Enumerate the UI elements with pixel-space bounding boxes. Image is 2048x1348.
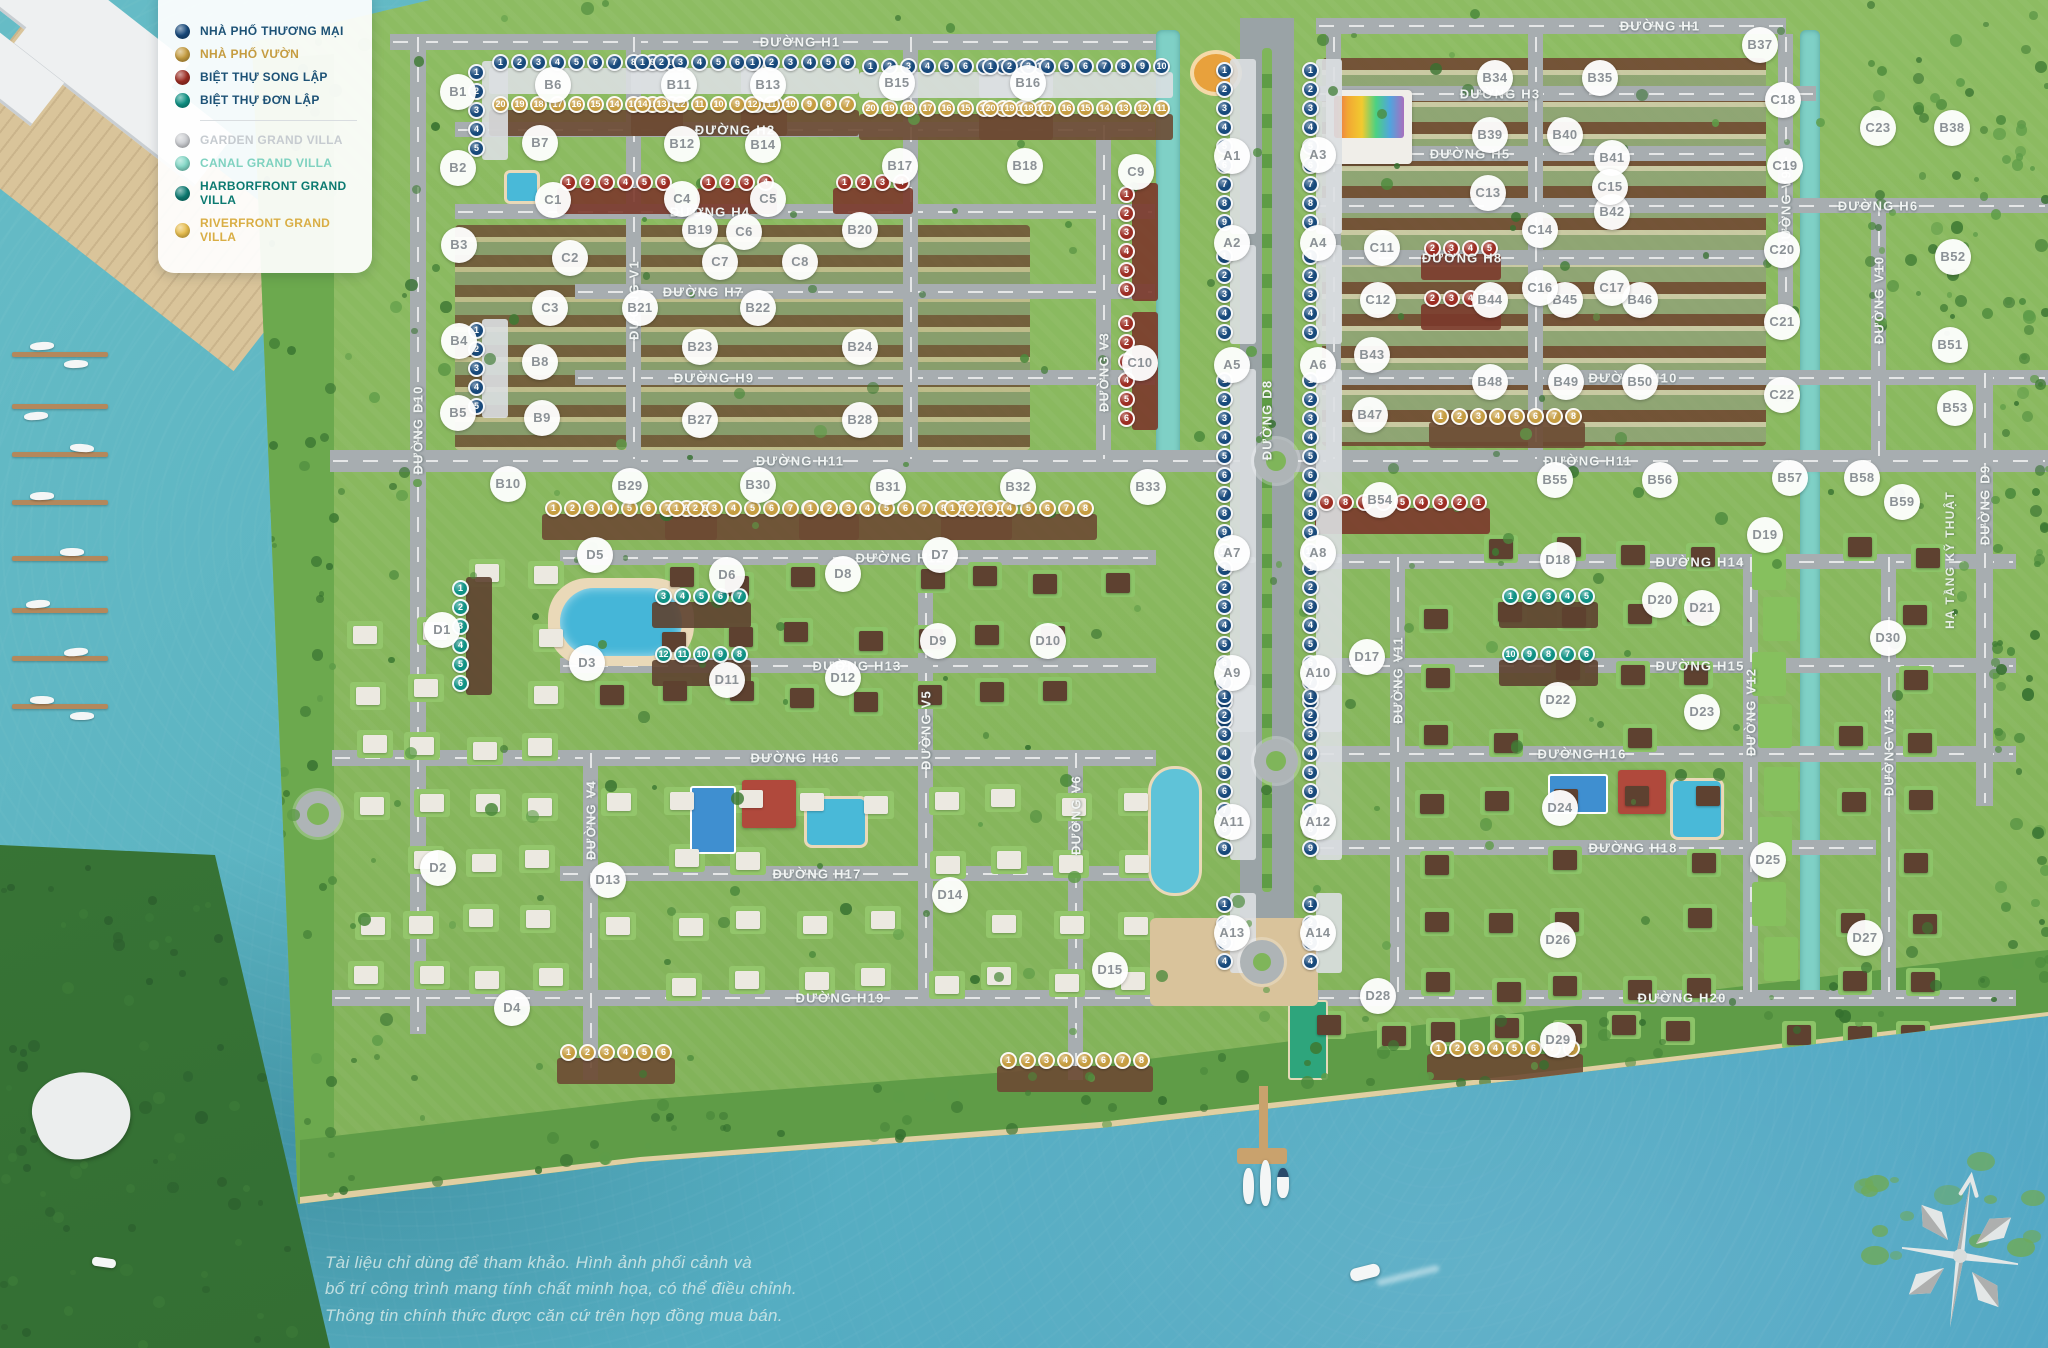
villa-roof: [1317, 1015, 1341, 1035]
tree: [329, 513, 339, 523]
road-name-label: ĐƯỜNG H16: [750, 751, 839, 766]
water-plant: [1890, 1251, 1903, 1260]
villa-building: [936, 856, 960, 874]
water-plant: [1872, 1225, 1888, 1237]
villa-roof: [1420, 794, 1444, 814]
tree: [319, 883, 327, 891]
unit-number: 3: [1118, 224, 1135, 241]
villa-building: [363, 735, 387, 753]
unit-number: 7: [782, 500, 799, 517]
tree: [70, 1270, 75, 1275]
tree: [2014, 401, 2019, 406]
tree: [651, 1113, 660, 1122]
tree: [440, 301, 451, 312]
block-label-A10: A10: [1300, 655, 1336, 691]
tree: [431, 122, 440, 131]
tree: [2017, 387, 2029, 399]
tree: [1409, 563, 1415, 569]
tree: [645, 1143, 651, 1149]
tree: [219, 977, 228, 986]
tree: [1023, 968, 1035, 980]
tree: [2022, 688, 2034, 700]
villa-building: [469, 909, 493, 927]
tree: [1236, 1070, 1249, 1083]
boat: [60, 548, 84, 556]
villa-roof: [854, 692, 878, 712]
tree: [1867, 1, 1875, 9]
tree: [2021, 45, 2030, 54]
villa-roof: [1485, 791, 1509, 811]
block-label-B3: B3: [441, 227, 477, 263]
villa-roof: [791, 567, 815, 587]
block-label-C11: C11: [1364, 230, 1400, 266]
block-label-B16: B16: [1010, 65, 1046, 101]
unit-number: 9: [1318, 494, 1335, 511]
road-name-label: ĐƯỜNG D10: [411, 385, 426, 474]
tree: [730, 886, 740, 896]
unit-number: 4: [1302, 119, 1319, 136]
tree: [2035, 379, 2046, 390]
canal: [1800, 468, 1820, 1002]
tree: [1495, 1015, 1507, 1027]
unit-number: 3: [840, 500, 857, 517]
legend-color-swatch: [175, 24, 190, 39]
villa-roof: [784, 622, 808, 642]
tree: [165, 936, 173, 944]
block-label-C21: C21: [1764, 304, 1800, 340]
unit-number: 4: [725, 500, 742, 517]
building-strip: [1499, 602, 1598, 628]
unit-number: 7: [1302, 486, 1319, 503]
road-ĐƯỜNG H10: [1316, 370, 2048, 385]
boat: [30, 696, 54, 704]
road-name-label: ĐƯỜNG V13: [1881, 708, 1896, 796]
unit-number: 4: [617, 1044, 634, 1061]
tree: [2023, 311, 2036, 324]
tree: [40, 1191, 46, 1197]
tree: [388, 657, 395, 664]
unit-number: 1: [1216, 62, 1233, 79]
building-strip: [1132, 183, 1158, 301]
tree: [2010, 818, 2023, 831]
unit-number: 4: [468, 379, 485, 396]
pier: [12, 352, 108, 357]
tree: [667, 907, 676, 916]
villa-roof: [1425, 912, 1449, 932]
block-label-D28: D28: [1360, 978, 1396, 1014]
tree: [2031, 899, 2039, 907]
pier: [12, 608, 108, 613]
villa-roof: [1628, 728, 1652, 748]
tree: [1317, 34, 1329, 46]
tree: [284, 1246, 290, 1252]
unit-number: 1: [1302, 62, 1319, 79]
tree: [411, 328, 418, 335]
block-label-C19: C19: [1767, 148, 1803, 184]
tree: [1973, 232, 1979, 238]
villa-roof: [1043, 681, 1067, 701]
tree: [485, 803, 498, 816]
unit-number: 8: [1302, 195, 1319, 212]
villa-roof: [729, 627, 753, 647]
tree: [952, 208, 958, 214]
tree: [1449, 52, 1455, 58]
unit-number: 3: [1302, 286, 1319, 303]
tree: [439, 1129, 444, 1134]
unit-number: 5: [1118, 262, 1135, 279]
road-name-label: ĐƯỜNG H18: [1588, 840, 1677, 855]
building-strip: [557, 1058, 675, 1084]
legend-item-7: HARBORFRONT GRAND VILLA: [175, 179, 357, 208]
road-ĐƯỜNG D9: [1976, 370, 1993, 806]
unit-number: 20: [492, 96, 509, 113]
villa-roof: [1553, 850, 1577, 870]
tree: [1994, 728, 2003, 737]
tree: [1377, 109, 1387, 119]
water-plant: [2023, 1230, 2041, 1243]
tree: [326, 1076, 337, 1087]
villa-roof: [975, 625, 999, 645]
tree: [413, 479, 421, 487]
tree: [657, 1099, 669, 1111]
unit-number: 1: [1502, 588, 1519, 605]
villa-roof: [1033, 574, 1057, 594]
unit-number: 13: [1115, 100, 1132, 117]
tree: [2007, 647, 2016, 656]
tree: [1, 1324, 8, 1331]
block-label-B43: B43: [1354, 337, 1390, 373]
block-label-D12: D12: [825, 660, 861, 696]
tree: [380, 1013, 393, 1026]
tree: [1510, 225, 1516, 231]
block-label-B35: B35: [1582, 60, 1618, 96]
tree: [1913, 102, 1924, 113]
unit-number: 1: [1470, 494, 1487, 511]
block-label-A14: A14: [1300, 915, 1336, 951]
unit-number: 1: [836, 174, 853, 191]
canal-villa-lawn: [1763, 597, 1797, 641]
tree: [790, 211, 797, 218]
villa-building: [356, 687, 380, 705]
unit-number: 2: [1216, 267, 1233, 284]
unit-number: 5: [1506, 1040, 1523, 1057]
tree: [1982, 308, 1993, 319]
road-name-label: ĐƯỜNG H1: [1620, 19, 1701, 34]
tree: [639, 1070, 647, 1078]
unit-number: 8: [731, 646, 748, 663]
block-label-A3: A3: [1300, 137, 1336, 173]
unit-number: 2: [1216, 81, 1233, 98]
tree: [2030, 166, 2035, 171]
legend-item-3: BIỆT THỰ SONG LẬP: [175, 70, 357, 85]
unit-number: 2: [1216, 707, 1233, 724]
tree: [1539, 1060, 1549, 1070]
tree: [2041, 195, 2048, 203]
unit-number: 4: [1216, 953, 1233, 970]
unit-number: 1: [944, 500, 961, 517]
unit-number: 5: [1302, 448, 1319, 465]
tree: [1877, 66, 1887, 76]
legend-color-swatch: [175, 186, 190, 201]
boat: [70, 712, 94, 720]
villa-roof: [859, 631, 883, 651]
villa-roof: [600, 685, 624, 705]
block-label-B58: B58: [1844, 460, 1880, 496]
tree: [1913, 73, 1925, 85]
tree: [1207, 279, 1216, 288]
tree: [1703, 252, 1709, 258]
unit-number: 3: [655, 588, 672, 605]
unit-number: 3: [1038, 1052, 1055, 1069]
sports-hall-green-roof: [1288, 1000, 1328, 1080]
unit-number: 3: [1302, 726, 1319, 743]
block-label-B37: B37: [1742, 27, 1778, 63]
villa-roof: [1842, 792, 1866, 812]
disclaimer-line: bố trí công trình mang tính chất minh họ…: [325, 1276, 797, 1302]
unit-number: 3: [1468, 1040, 1485, 1057]
tree: [1956, 78, 1965, 87]
tree: [1713, 768, 1726, 781]
tree: [432, 264, 440, 272]
tree: [1, 1174, 11, 1184]
unit-number: 4: [859, 500, 876, 517]
tree: [217, 1177, 227, 1187]
unit-number: 7: [1058, 500, 1075, 517]
tree: [2008, 940, 2018, 950]
tree: [120, 1264, 132, 1276]
school-rainbow-roof: [1334, 96, 1404, 138]
unit-number: 3: [583, 500, 600, 517]
canal-villa-lawn: [1764, 767, 1798, 811]
tree: [153, 1296, 165, 1308]
block-label-B34: B34: [1477, 60, 1513, 96]
tree: [2035, 61, 2047, 73]
tree: [9, 1045, 17, 1053]
unit-number: 20: [982, 100, 999, 117]
unit-number: 3: [1540, 588, 1557, 605]
tree: [2041, 308, 2048, 317]
villa-building: [861, 968, 885, 986]
villa-building: [991, 789, 1015, 807]
villa-building: [672, 978, 696, 996]
villa-building: [539, 629, 563, 647]
unit-number: 5: [820, 54, 837, 71]
road-name-label: ĐƯỜNG D8: [1260, 380, 1275, 461]
tree: [1351, 33, 1357, 39]
tree: [2005, 488, 2015, 498]
villa-roof: [1497, 982, 1521, 1002]
unit-number: 7: [839, 96, 856, 113]
unit-number: 2: [1302, 391, 1319, 408]
block-label-D13: D13: [590, 862, 626, 898]
villa-building: [475, 971, 499, 989]
tree: [30, 1135, 38, 1143]
tree: [2032, 827, 2044, 839]
tree: [1996, 682, 2005, 691]
legend-item-label: BIỆT THỰ ĐƠN LẬP: [200, 93, 320, 107]
tree: [193, 905, 199, 911]
block-label-B59: B59: [1884, 484, 1920, 520]
tree: [720, 1125, 726, 1131]
tree: [153, 1092, 164, 1103]
tree: [153, 1159, 158, 1164]
tree: [1253, 148, 1262, 157]
tree: [868, 1130, 880, 1142]
unit-number: 6: [1118, 281, 1135, 298]
block-label-B53: B53: [1937, 390, 1973, 426]
block-label-C2: C2: [552, 240, 588, 276]
infra-zone-label: HẠ TẦNG KỸ THUẬT: [1943, 491, 1957, 629]
tree: [1641, 916, 1650, 925]
unit-number: 14: [1096, 100, 1113, 117]
tree: [2045, 466, 2048, 473]
pier: [12, 452, 108, 457]
tree: [22, 1328, 31, 1337]
unit-number: 19: [881, 100, 898, 117]
unit-number: 2: [1019, 1052, 1036, 1069]
tree: [526, 810, 539, 823]
tree: [958, 1078, 964, 1084]
villa-roof: [980, 682, 1004, 702]
tree: [257, 1073, 267, 1083]
building-strip: [557, 188, 675, 214]
tree: [1030, 810, 1043, 823]
villa-building: [1125, 855, 1149, 873]
tree: [809, 951, 816, 958]
villa-building: [803, 916, 827, 934]
tree: [2001, 902, 2011, 912]
unit-number: 8: [1565, 408, 1582, 425]
tree: [396, 490, 408, 502]
road-name-label: ĐƯỜNG H7: [663, 284, 744, 299]
tree: [126, 1184, 135, 1193]
unit-number: 7: [916, 500, 933, 517]
tree: [1025, 1090, 1031, 1096]
road-name-label: ĐƯỜNG V11: [1390, 636, 1405, 724]
unit-number: 9: [1216, 840, 1233, 857]
unit-number: 8: [1216, 195, 1233, 212]
unit-number: 2: [1302, 267, 1319, 284]
tree: [235, 1239, 242, 1246]
block-label-A2: A2: [1214, 225, 1250, 261]
villa-roof: [790, 688, 814, 708]
unit-number: 7: [1559, 646, 1576, 663]
block-label-C12: C12: [1360, 282, 1396, 318]
villa-building: [409, 916, 433, 934]
road-name-label: ĐƯỜNG H20: [1637, 991, 1726, 1006]
villa-building: [679, 918, 703, 936]
tree: [1156, 970, 1168, 982]
tree: [1816, 118, 1825, 127]
block-label-B23: B23: [682, 329, 718, 365]
unit-number: 20: [862, 100, 879, 117]
tree: [1218, 1053, 1227, 1062]
villa-building: [871, 911, 895, 929]
villa-building: [736, 911, 760, 929]
tree: [536, 1063, 543, 1070]
tree: [1892, 690, 1903, 701]
block-label-D19: D19: [1747, 517, 1783, 553]
legend-color-swatch: [175, 223, 190, 238]
unit-number: 3: [1302, 410, 1319, 427]
tree: [1091, 629, 1102, 640]
villa-roof: [1904, 670, 1928, 690]
tree: [671, 1125, 677, 1131]
unit-number: 16: [568, 96, 585, 113]
building-strip: [1230, 369, 1256, 563]
unit-number: 11: [674, 646, 691, 663]
tree: [20, 1049, 27, 1056]
unit-number: 18: [1020, 100, 1037, 117]
unit-number: 17: [1039, 100, 1056, 117]
block-label-C7: C7: [702, 244, 738, 280]
villa-roof: [1904, 853, 1928, 873]
tree: [374, 1054, 380, 1060]
unit-number: 6: [1216, 467, 1233, 484]
unit-number: 5: [1216, 324, 1233, 341]
unit-number: 4: [919, 58, 936, 75]
block-label-B8: B8: [522, 344, 558, 380]
villa-roof: [1666, 1021, 1690, 1041]
unit-number: 4: [1559, 588, 1576, 605]
villa-building: [539, 968, 563, 986]
tree: [1992, 643, 2004, 655]
road-name-label: ĐƯỜNG H8: [1422, 250, 1503, 265]
tree: [1733, 724, 1740, 731]
tree: [1980, 126, 1988, 134]
tree: [642, 217, 647, 222]
tree: [687, 455, 692, 460]
tree: [1764, 1011, 1773, 1020]
tree: [1980, 192, 1988, 200]
villa-building: [1055, 974, 1079, 992]
unit-number: 6: [655, 1044, 672, 1061]
unit-number: 8: [1216, 505, 1233, 522]
block-label-D15: D15: [1092, 952, 1128, 988]
block-label-D5: D5: [577, 537, 613, 573]
unit-number: 5: [1076, 1052, 1093, 1069]
block-label-D26: D26: [1540, 922, 1576, 958]
tree: [893, 929, 904, 940]
tree: [706, 1111, 715, 1120]
tree: [1041, 366, 1048, 373]
tree: [2026, 675, 2033, 682]
unit-number: 3: [1216, 598, 1233, 615]
tree: [1069, 1028, 1076, 1035]
unit-number: 16: [1058, 100, 1075, 117]
tree: [254, 1336, 261, 1343]
tree: [1965, 88, 1975, 98]
unit-number: 15: [1077, 100, 1094, 117]
unit-number: 6: [1077, 58, 1094, 75]
tree: [195, 1111, 208, 1124]
unit-number: 6: [897, 500, 914, 517]
tree: [1485, 841, 1494, 850]
tree: [983, 732, 989, 738]
villa-building: [675, 849, 699, 867]
unit-number: 4: [1118, 243, 1135, 260]
unit-number: 11: [691, 96, 708, 113]
block-label-D21: D21: [1684, 590, 1720, 626]
villa-building: [354, 966, 378, 984]
villa-roof: [1431, 1022, 1455, 1042]
block-label-D1: D1: [424, 612, 460, 648]
block-label-A13: A13: [1214, 915, 1250, 951]
tree: [168, 1153, 176, 1161]
tree: [1492, 548, 1500, 556]
block-label-C3: C3: [532, 290, 568, 326]
block-label-B11: B11: [661, 67, 697, 103]
